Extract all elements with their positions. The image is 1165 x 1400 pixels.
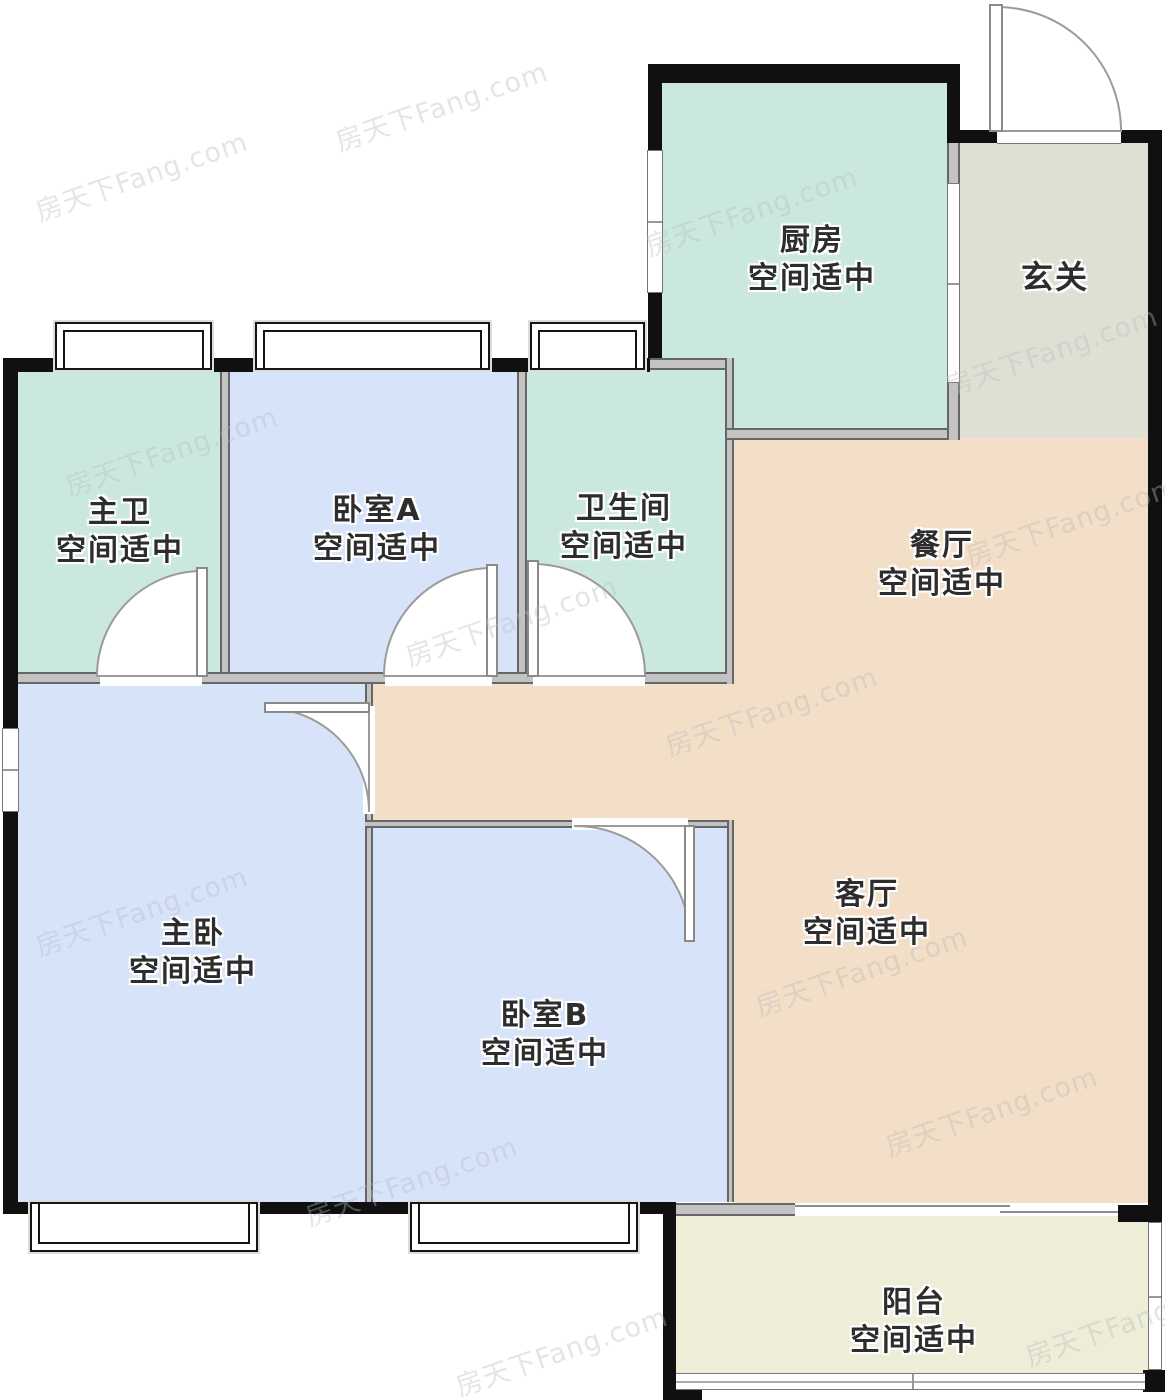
room-name: 餐厅 — [878, 527, 1006, 565]
room-name: 客厅 — [803, 876, 931, 914]
bedroom-a-door — [384, 565, 497, 676]
room-name: 厨房 — [748, 222, 876, 260]
label-master-bedroom: 主卧 空间适中 — [129, 915, 257, 991]
room-name: 阳台 — [850, 1284, 978, 1322]
floorplan: 厨房 空间适中 玄关 主卫 空间适中 卧室A 空间适中 卫生间 空间适中 餐厅 … — [0, 0, 1165, 1400]
room-status: 空间适中 — [129, 953, 257, 991]
entry-door — [990, 5, 1121, 131]
room-status: 空间适中 — [748, 260, 876, 298]
label-dining: 餐厅 空间适中 — [878, 527, 1006, 603]
room-status: 空间适中 — [313, 530, 441, 568]
bath-door — [528, 561, 645, 676]
master-bath-door — [97, 568, 207, 676]
room-name: 主卧 — [129, 915, 257, 953]
room-status: 空间适中 — [803, 914, 931, 952]
label-living: 客厅 空间适中 — [803, 876, 931, 952]
master-bedroom-door — [265, 703, 369, 812]
room-name: 玄关 — [1021, 258, 1089, 296]
room-status: 空间适中 — [560, 528, 688, 566]
room-status: 空间适中 — [56, 532, 184, 570]
room-name: 卫生间 — [560, 490, 688, 528]
room-status: 空间适中 — [878, 565, 1006, 603]
door-arcs-layer — [0, 0, 1165, 1400]
label-bedroom-b: 卧室B 空间适中 — [481, 997, 609, 1073]
label-bedroom-a: 卧室A 空间适中 — [313, 492, 441, 568]
label-kitchen: 厨房 空间适中 — [748, 222, 876, 298]
room-name: 主卫 — [56, 494, 184, 532]
room-name: 卧室B — [481, 997, 609, 1035]
label-master-bath: 主卫 空间适中 — [56, 494, 184, 570]
room-status: 空间适中 — [850, 1322, 978, 1360]
label-entry: 玄关 — [1021, 258, 1089, 296]
room-status: 空间适中 — [481, 1035, 609, 1073]
room-name: 卧室A — [313, 492, 441, 530]
label-balcony: 阳台 空间适中 — [850, 1284, 978, 1360]
label-bath: 卫生间 空间适中 — [560, 490, 688, 566]
bedroom-b-door — [574, 826, 694, 941]
